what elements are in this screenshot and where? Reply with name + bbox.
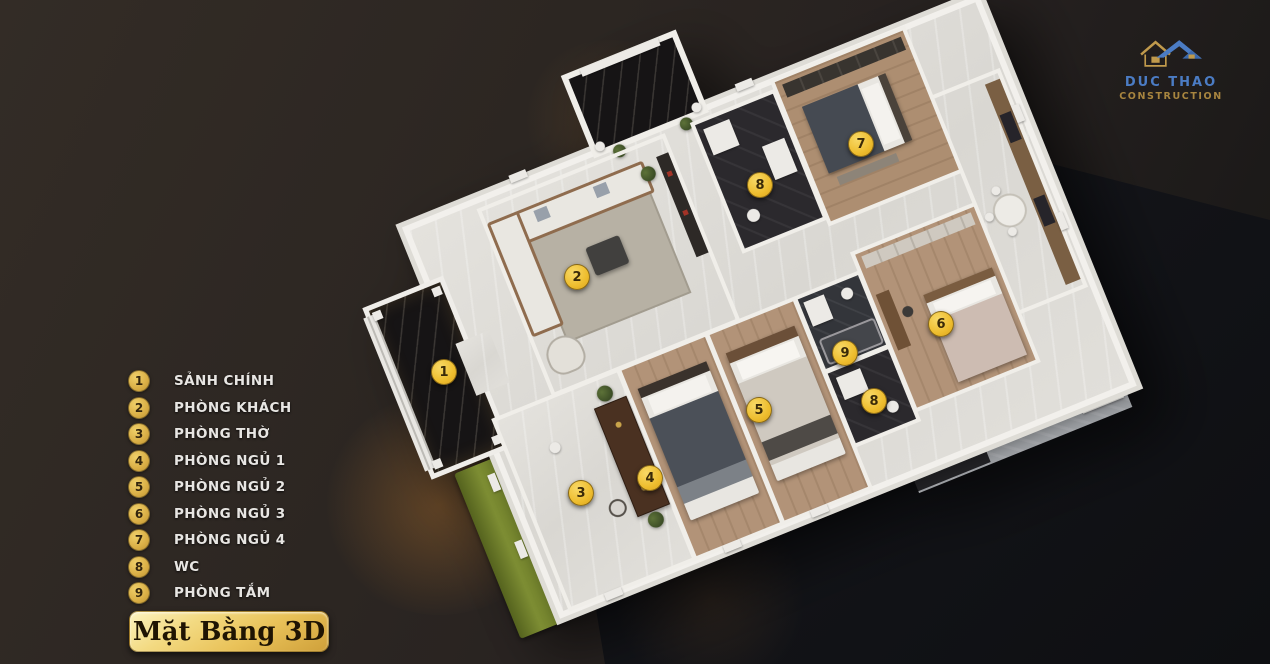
altar-gold-detail bbox=[615, 421, 623, 429]
legend-number-badge: 2 bbox=[128, 397, 150, 419]
legend-label: PHÒNG NGỦ 4 bbox=[174, 532, 286, 548]
legend-item: 5 PHÒNG NGỦ 2 bbox=[128, 474, 292, 501]
legend-item: 8 WC bbox=[128, 554, 292, 581]
legend-number-badge: 8 bbox=[128, 556, 150, 578]
legend-label: PHÒNG KHÁCH bbox=[174, 400, 292, 416]
poster-canvas: 1 2 3 4 5 6 7 8 9 8 1 SẢNH CHÍNH 2 PHÒNG… bbox=[0, 0, 1270, 664]
legend-label: PHÒNG NGỦ 2 bbox=[174, 479, 286, 495]
room-number-marker: 3 bbox=[568, 480, 594, 506]
room-number-marker: 6 bbox=[928, 311, 954, 337]
room-number-marker: 9 bbox=[832, 340, 858, 366]
legend-item: 1 SẢNH CHÍNH bbox=[128, 368, 292, 395]
legend-label: PHÒNG THỜ bbox=[174, 426, 270, 442]
plan-title-badge: Mặt Bằng 3D bbox=[129, 611, 329, 652]
legend-number-badge: 7 bbox=[128, 529, 150, 551]
logo-name: DUC THAO bbox=[1125, 75, 1217, 90]
legend-item: 9 PHÒNG TẮM bbox=[128, 580, 292, 607]
legend-label: PHÒNG NGỦ 1 bbox=[174, 453, 286, 469]
legend-list: 1 SẢNH CHÍNH 2 PHÒNG KHÁCH 3 PHÒNG THỜ 4… bbox=[128, 368, 292, 607]
legend-item: 2 PHÒNG KHÁCH bbox=[128, 395, 292, 422]
room-number-marker: 4 bbox=[637, 465, 663, 491]
legend-number-badge: 6 bbox=[128, 503, 150, 525]
legend-number-badge: 5 bbox=[128, 476, 150, 498]
legend-label: SẢNH CHÍNH bbox=[174, 373, 274, 389]
legend-number-badge: 9 bbox=[128, 582, 150, 604]
room-number-marker: 2 bbox=[564, 264, 590, 290]
room-number-marker: 5 bbox=[746, 397, 772, 423]
legend-number-badge: 4 bbox=[128, 450, 150, 472]
legend: 1 SẢNH CHÍNH 2 PHÒNG KHÁCH 3 PHÒNG THỜ 4… bbox=[128, 368, 292, 607]
tv-decor bbox=[667, 170, 674, 177]
legend-label: WC bbox=[174, 559, 200, 575]
plan-title: Mặt Bằng 3D bbox=[133, 617, 325, 647]
tv-decor bbox=[682, 209, 689, 216]
legend-item: 6 PHÒNG NGỦ 3 bbox=[128, 501, 292, 528]
legend-item: 4 PHÒNG NGỦ 1 bbox=[128, 448, 292, 475]
legend-number-badge: 3 bbox=[128, 423, 150, 445]
room-number-marker: 8 bbox=[747, 172, 773, 198]
legend-label: PHÒNG TẮM bbox=[174, 585, 270, 601]
legend-item: 3 PHÒNG THỜ bbox=[128, 421, 292, 448]
legend-number-badge: 1 bbox=[128, 370, 150, 392]
room-number-marker: 1 bbox=[431, 359, 457, 385]
legend-item: 7 PHÒNG NGỦ 4 bbox=[128, 527, 292, 554]
legend-label: PHÒNG NGỦ 3 bbox=[174, 506, 286, 522]
room-number-marker: 8 bbox=[861, 388, 887, 414]
logo-subtitle: CONSTRUCTION bbox=[1119, 91, 1223, 102]
room-number-marker: 7 bbox=[848, 131, 874, 157]
house-roofs-icon bbox=[1138, 38, 1204, 73]
company-logo: DUC THAO CONSTRUCTION bbox=[1108, 38, 1234, 102]
